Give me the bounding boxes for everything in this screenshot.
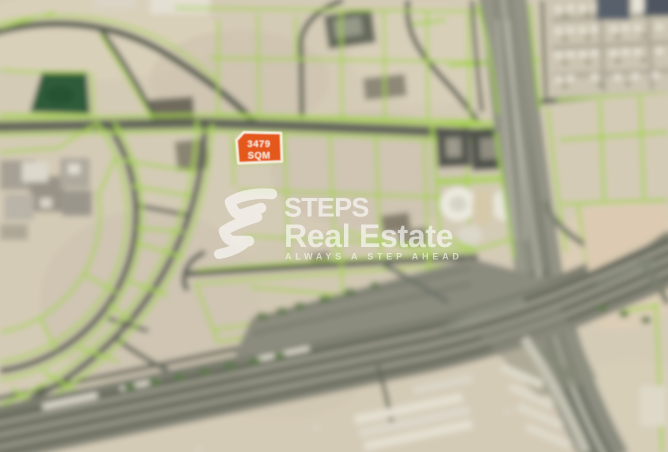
- svg-text:ALWAYS A STEP AHEAD: ALWAYS A STEP AHEAD: [285, 252, 463, 262]
- svg-text:SQM: SQM: [248, 151, 271, 162]
- svg-text:3479: 3479: [247, 139, 271, 150]
- svg-text:Real Estate: Real Estate: [284, 218, 453, 254]
